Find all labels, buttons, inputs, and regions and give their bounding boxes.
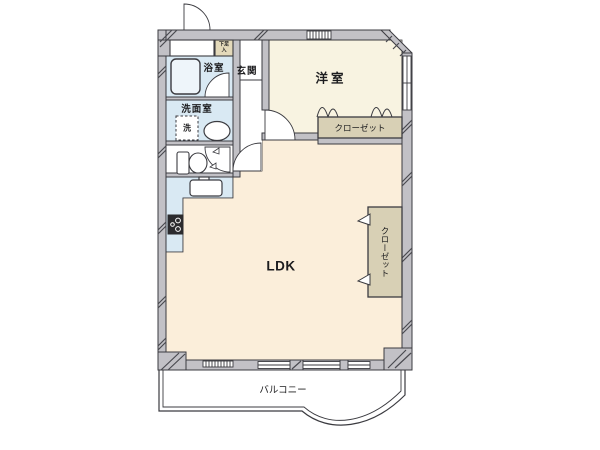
basin-icon: [204, 122, 230, 141]
wall-corner-bottom-left: [158, 352, 186, 370]
balcony-outer-rail: [159, 370, 405, 425]
kitchen-sink-icon: [190, 177, 222, 196]
label-closet-ldk: クローゼット: [379, 227, 391, 278]
label-shoe-cabinet: 下足 入: [219, 43, 229, 54]
wall-hall-right: [262, 40, 269, 110]
wall-corner-bottom-right: [384, 348, 412, 370]
label-washer: 洗: [183, 123, 191, 134]
wall-left: [158, 30, 166, 370]
floor-plan: 浴室 洗面室 洗 玄関 洋室 クローゼット クローゼット LDK バルコニー 下…: [0, 0, 600, 450]
bathtub-icon: [171, 59, 200, 94]
label-bathroom: 浴室: [203, 60, 224, 74]
label-entrance: 玄関: [236, 63, 257, 77]
wall-toilet-kitchen: [166, 173, 233, 177]
wall-top: [158, 30, 390, 40]
label-washroom: 洗面室: [181, 101, 213, 115]
entrance-alcove: [170, 40, 214, 56]
window-ldk-1: [258, 362, 290, 369]
balcony-outline: [159, 370, 405, 425]
label-western-room: 洋室: [315, 68, 346, 87]
window-west-top: [307, 31, 331, 39]
stove-icon: [168, 215, 183, 234]
wall-mullion-2: [340, 360, 348, 370]
toilet-icon: [177, 152, 207, 174]
window-ldk-3: [348, 362, 370, 369]
label-closet-west: クローゼット: [334, 122, 385, 134]
window-west-right: [403, 56, 411, 110]
wall-closet-bottom: [318, 138, 402, 144]
floors: [166, 40, 402, 360]
window-ldk-shutter: [203, 361, 233, 367]
label-balcony: バルコニー: [259, 382, 306, 396]
window-ldk-2: [303, 362, 340, 369]
wall-wash-toilet: [166, 141, 233, 145]
label-ldk: LDK: [266, 259, 295, 274]
entrance-door-swing: [184, 4, 210, 30]
label-shoe-cabinet-line2: 入: [221, 47, 226, 53]
